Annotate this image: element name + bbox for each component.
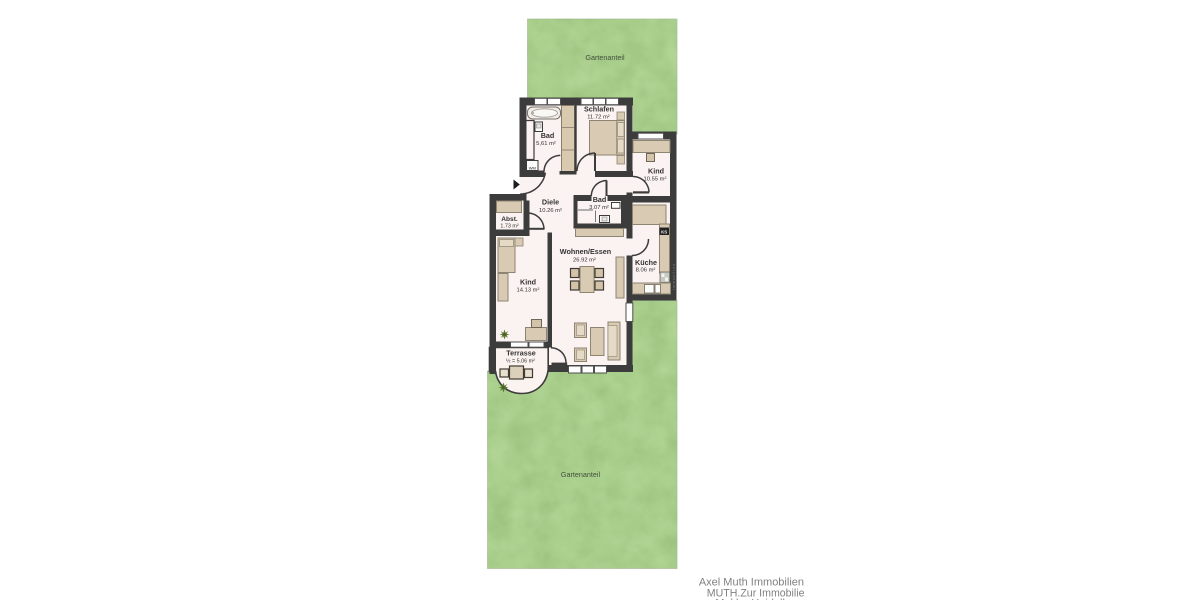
- svg-text:Diele: Diele: [542, 198, 559, 207]
- svg-text:Gartenanteil: Gartenanteil: [561, 470, 601, 479]
- svg-text:Schlafen: Schlafen: [584, 105, 614, 114]
- svg-text:8.06 m²: 8.06 m²: [636, 268, 656, 274]
- svg-text:KS: KS: [661, 229, 667, 234]
- svg-text:WM: WM: [529, 165, 536, 170]
- svg-text:11.72 m²: 11.72 m²: [587, 115, 610, 121]
- svg-text:Kind: Kind: [648, 167, 664, 176]
- svg-text:Küche: Küche: [635, 258, 657, 267]
- svg-text:Immobilien: Immobilien: [672, 264, 676, 290]
- svg-text:Bad: Bad: [541, 131, 555, 140]
- svg-text:1.73 m²: 1.73 m²: [500, 223, 518, 229]
- svg-text:14.13 m²: 14.13 m²: [517, 288, 540, 294]
- svg-text:Abst.: Abst.: [501, 216, 518, 223]
- svg-text:Kind: Kind: [520, 278, 536, 287]
- svg-text:Terrasse: Terrasse: [506, 349, 535, 358]
- svg-text:10.55 m²: 10.55 m²: [644, 176, 667, 182]
- svg-text:3.07 m²: 3.07 m²: [589, 205, 609, 211]
- svg-text:5,61 m²: 5,61 m²: [536, 141, 556, 147]
- svg-text:Bad: Bad: [593, 195, 607, 204]
- svg-text:½ = 5.06 m²: ½ = 5.06 m²: [506, 358, 535, 365]
- svg-text:26.92 m²: 26.92 m²: [573, 257, 596, 263]
- svg-text:Wohnen/Essen: Wohnen/Essen: [560, 247, 611, 256]
- svg-text:10.26 m²: 10.26 m²: [539, 208, 562, 214]
- svg-text:Gartenanteil: Gartenanteil: [585, 53, 625, 62]
